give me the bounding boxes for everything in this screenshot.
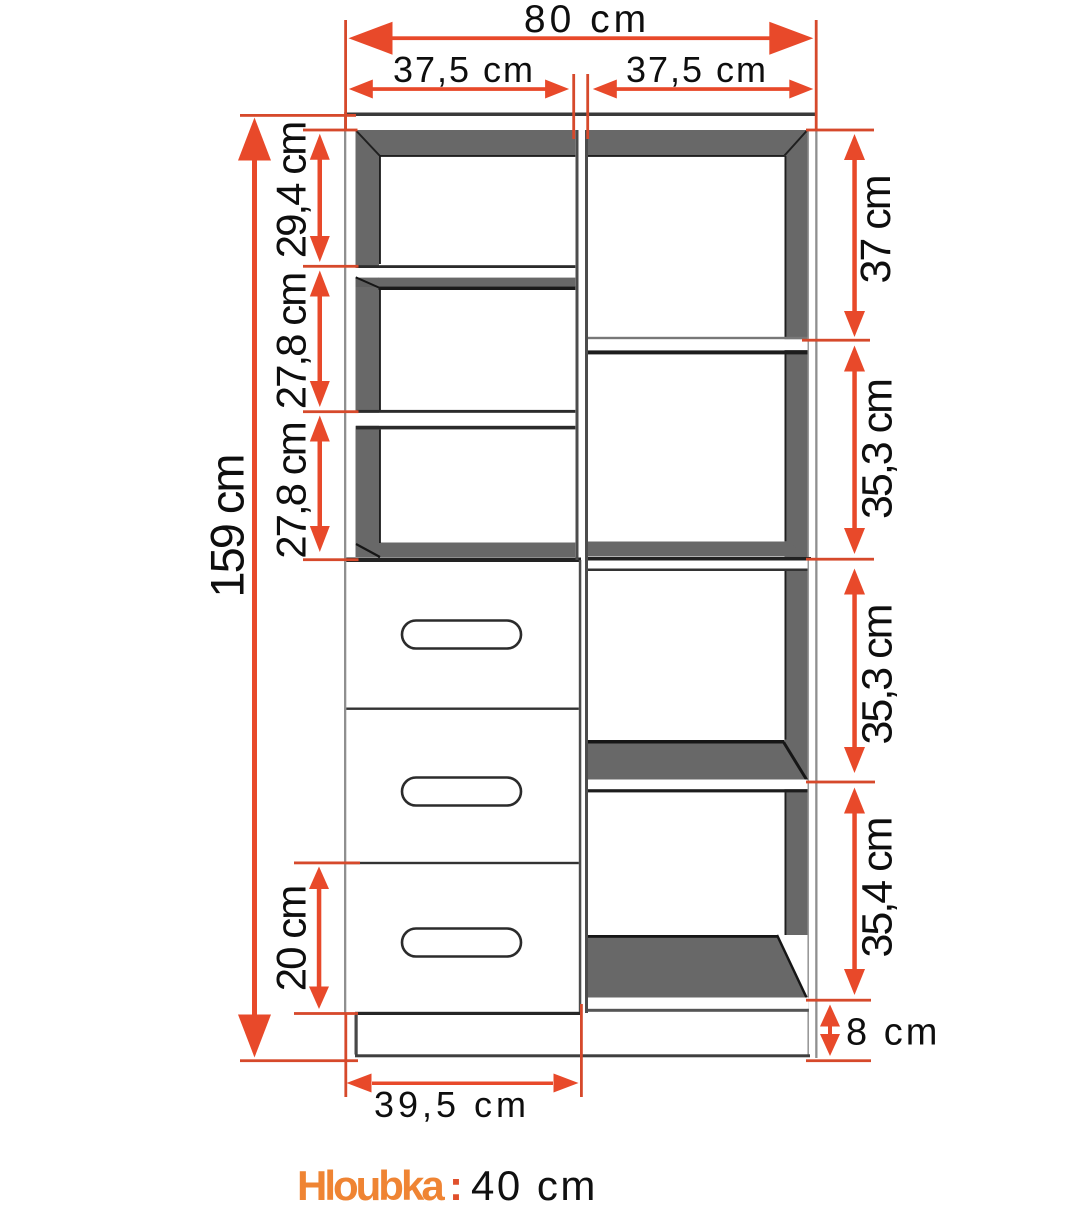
svg-text:37,5 cm: 37,5 cm <box>626 49 768 90</box>
svg-text:8 cm: 8 cm <box>846 1011 940 1053</box>
svg-text::: : <box>449 1162 463 1209</box>
svg-text:35,3 cm: 35,3 cm <box>854 606 902 745</box>
svg-text:27,8 cm: 27,8 cm <box>268 274 315 409</box>
svg-text:27,8 cm: 27,8 cm <box>268 423 315 558</box>
svg-text:35,3 cm: 35,3 cm <box>854 380 902 519</box>
svg-text:159 cm: 159 cm <box>201 455 254 597</box>
svg-text:35,4 cm: 35,4 cm <box>854 819 902 958</box>
svg-text:29,4 cm: 29,4 cm <box>268 123 315 258</box>
svg-text:Hloubka: Hloubka <box>297 1162 445 1209</box>
svg-text:39,5 cm: 39,5 cm <box>374 1084 530 1125</box>
svg-text:37 cm: 37 cm <box>852 176 900 283</box>
svg-text:80 cm: 80 cm <box>524 0 650 41</box>
svg-text:37,5 cm: 37,5 cm <box>393 49 535 90</box>
svg-text:40 cm: 40 cm <box>471 1162 598 1209</box>
svg-text:20 cm: 20 cm <box>268 887 315 991</box>
